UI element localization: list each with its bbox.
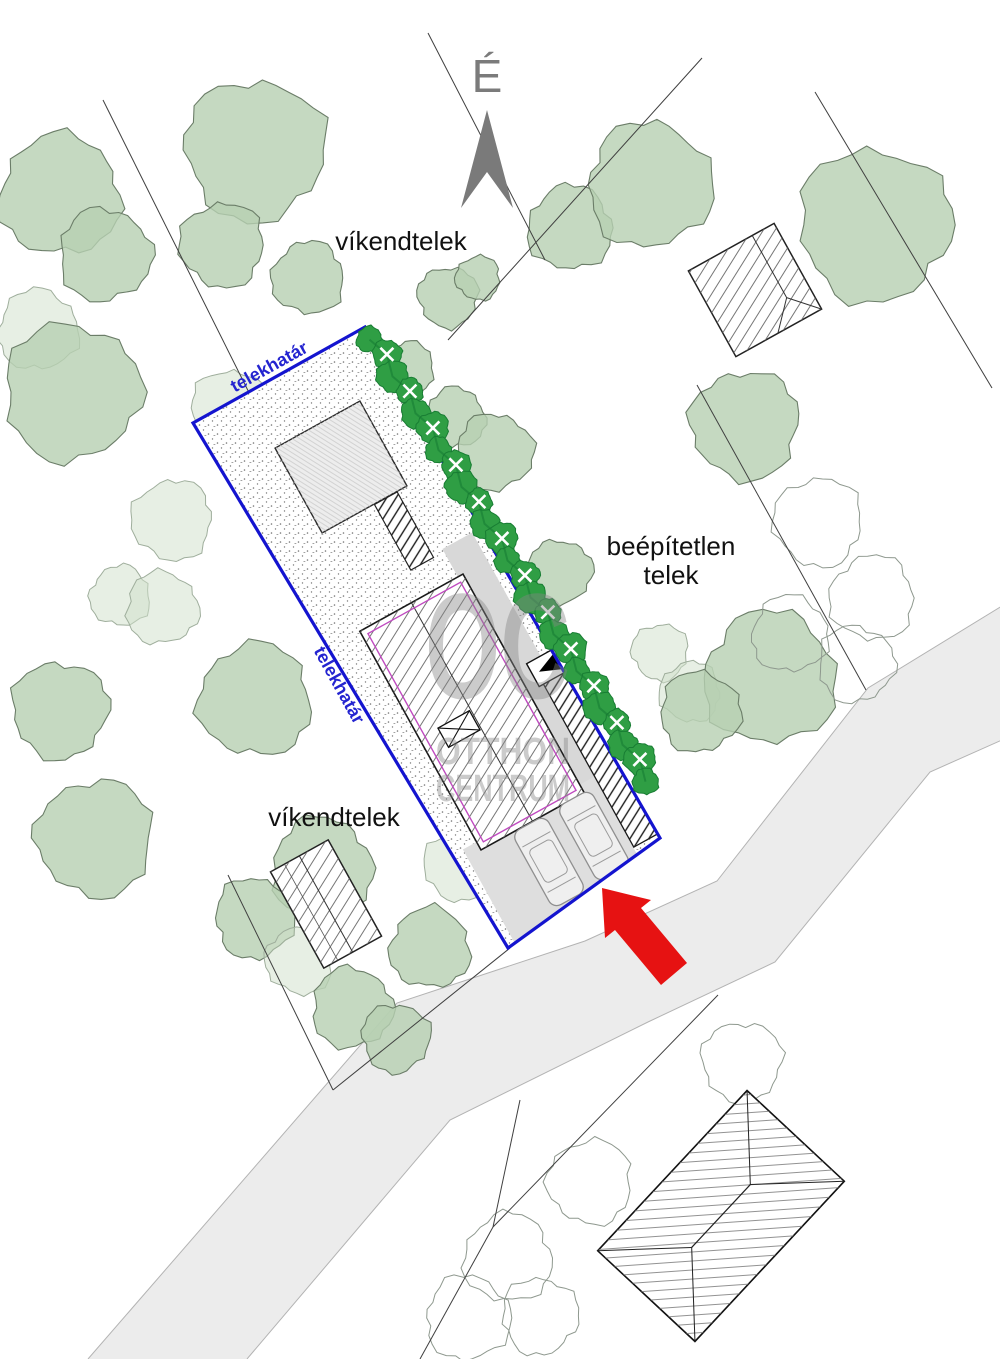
neighbor-building-se (598, 1091, 845, 1342)
label-beepitetlen-line1: beépítetlen (607, 531, 736, 561)
label-vikendtelek-bottom: víkendtelek (268, 802, 401, 832)
site-plan: OC OTTHON CENTRUM víkendtelek beépítetle… (0, 0, 1000, 1359)
label-beepitetlen-line2: telek (644, 560, 700, 590)
watermark-line2: CENTRUM (436, 768, 570, 810)
north-arrow-icon (461, 110, 513, 208)
label-vikendtelek-top: víkendtelek (335, 226, 468, 256)
watermark-logo: OC (425, 562, 570, 730)
north-label: É (472, 50, 503, 102)
watermark-line1: OTTHON (436, 731, 570, 773)
watermark: OC OTTHON CENTRUM (425, 562, 570, 810)
site-plan-svg: OC OTTHON CENTRUM víkendtelek beépítetle… (0, 0, 1000, 1359)
